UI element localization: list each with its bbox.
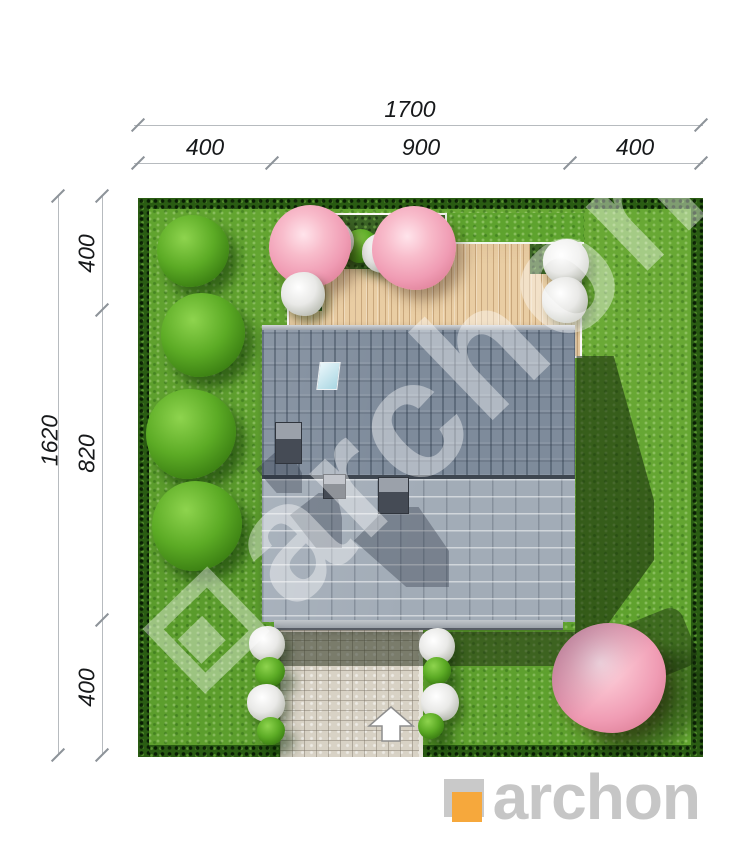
footer-logo: archon [444, 768, 700, 832]
white-bush [281, 272, 325, 316]
chimney [275, 422, 302, 464]
footer-brand-text: archon [493, 765, 700, 829]
green-bush [157, 215, 229, 287]
green-bush [161, 293, 245, 377]
dimension-line-top-segments [134, 163, 703, 164]
dimension-line-left-total [58, 196, 59, 755]
chimney [323, 474, 346, 499]
watermark-logo-square [178, 616, 226, 664]
plot-area: archon [138, 198, 703, 757]
footer-logo-orange-square [452, 792, 482, 822]
dimension-label-top-seg2: 900 [371, 134, 471, 161]
dimension-label-left-seg2: 820 [74, 394, 101, 514]
green-bush [418, 713, 444, 739]
dimension-label-left-seg3: 400 [74, 628, 101, 748]
skylight [316, 362, 340, 390]
green-bush [152, 481, 242, 571]
dimension-label-left-total: 1620 [37, 381, 64, 501]
footer-logo-icon [444, 779, 484, 822]
dimension-label-top-seg3: 400 [585, 134, 685, 161]
roof-gutter [274, 620, 563, 630]
white-bush [247, 684, 285, 722]
dimension-line-left-segments [102, 196, 103, 755]
tree-shade-overlay [552, 623, 666, 733]
hedge-border-left [138, 198, 149, 757]
pink-tree [552, 623, 666, 733]
watermark-logo-icon [143, 566, 270, 693]
green-bush [423, 657, 451, 685]
dimension-line-top-total [134, 125, 703, 126]
roof-upper-slope [262, 330, 575, 477]
white-bush [542, 277, 588, 323]
dimension-label-top-total: 1700 [335, 96, 485, 123]
green-bush [146, 389, 236, 479]
entrance-arrow-icon [367, 706, 415, 742]
pink-tree [372, 206, 456, 290]
site-plan-canvas: { "drawing": { "top_dimensions": { "tota… [0, 0, 734, 854]
house-roof [262, 325, 575, 630]
dimension-label-left-seg1: 400 [74, 194, 101, 314]
dimension-label-top-seg1: 400 [155, 134, 255, 161]
chimney [378, 477, 409, 514]
